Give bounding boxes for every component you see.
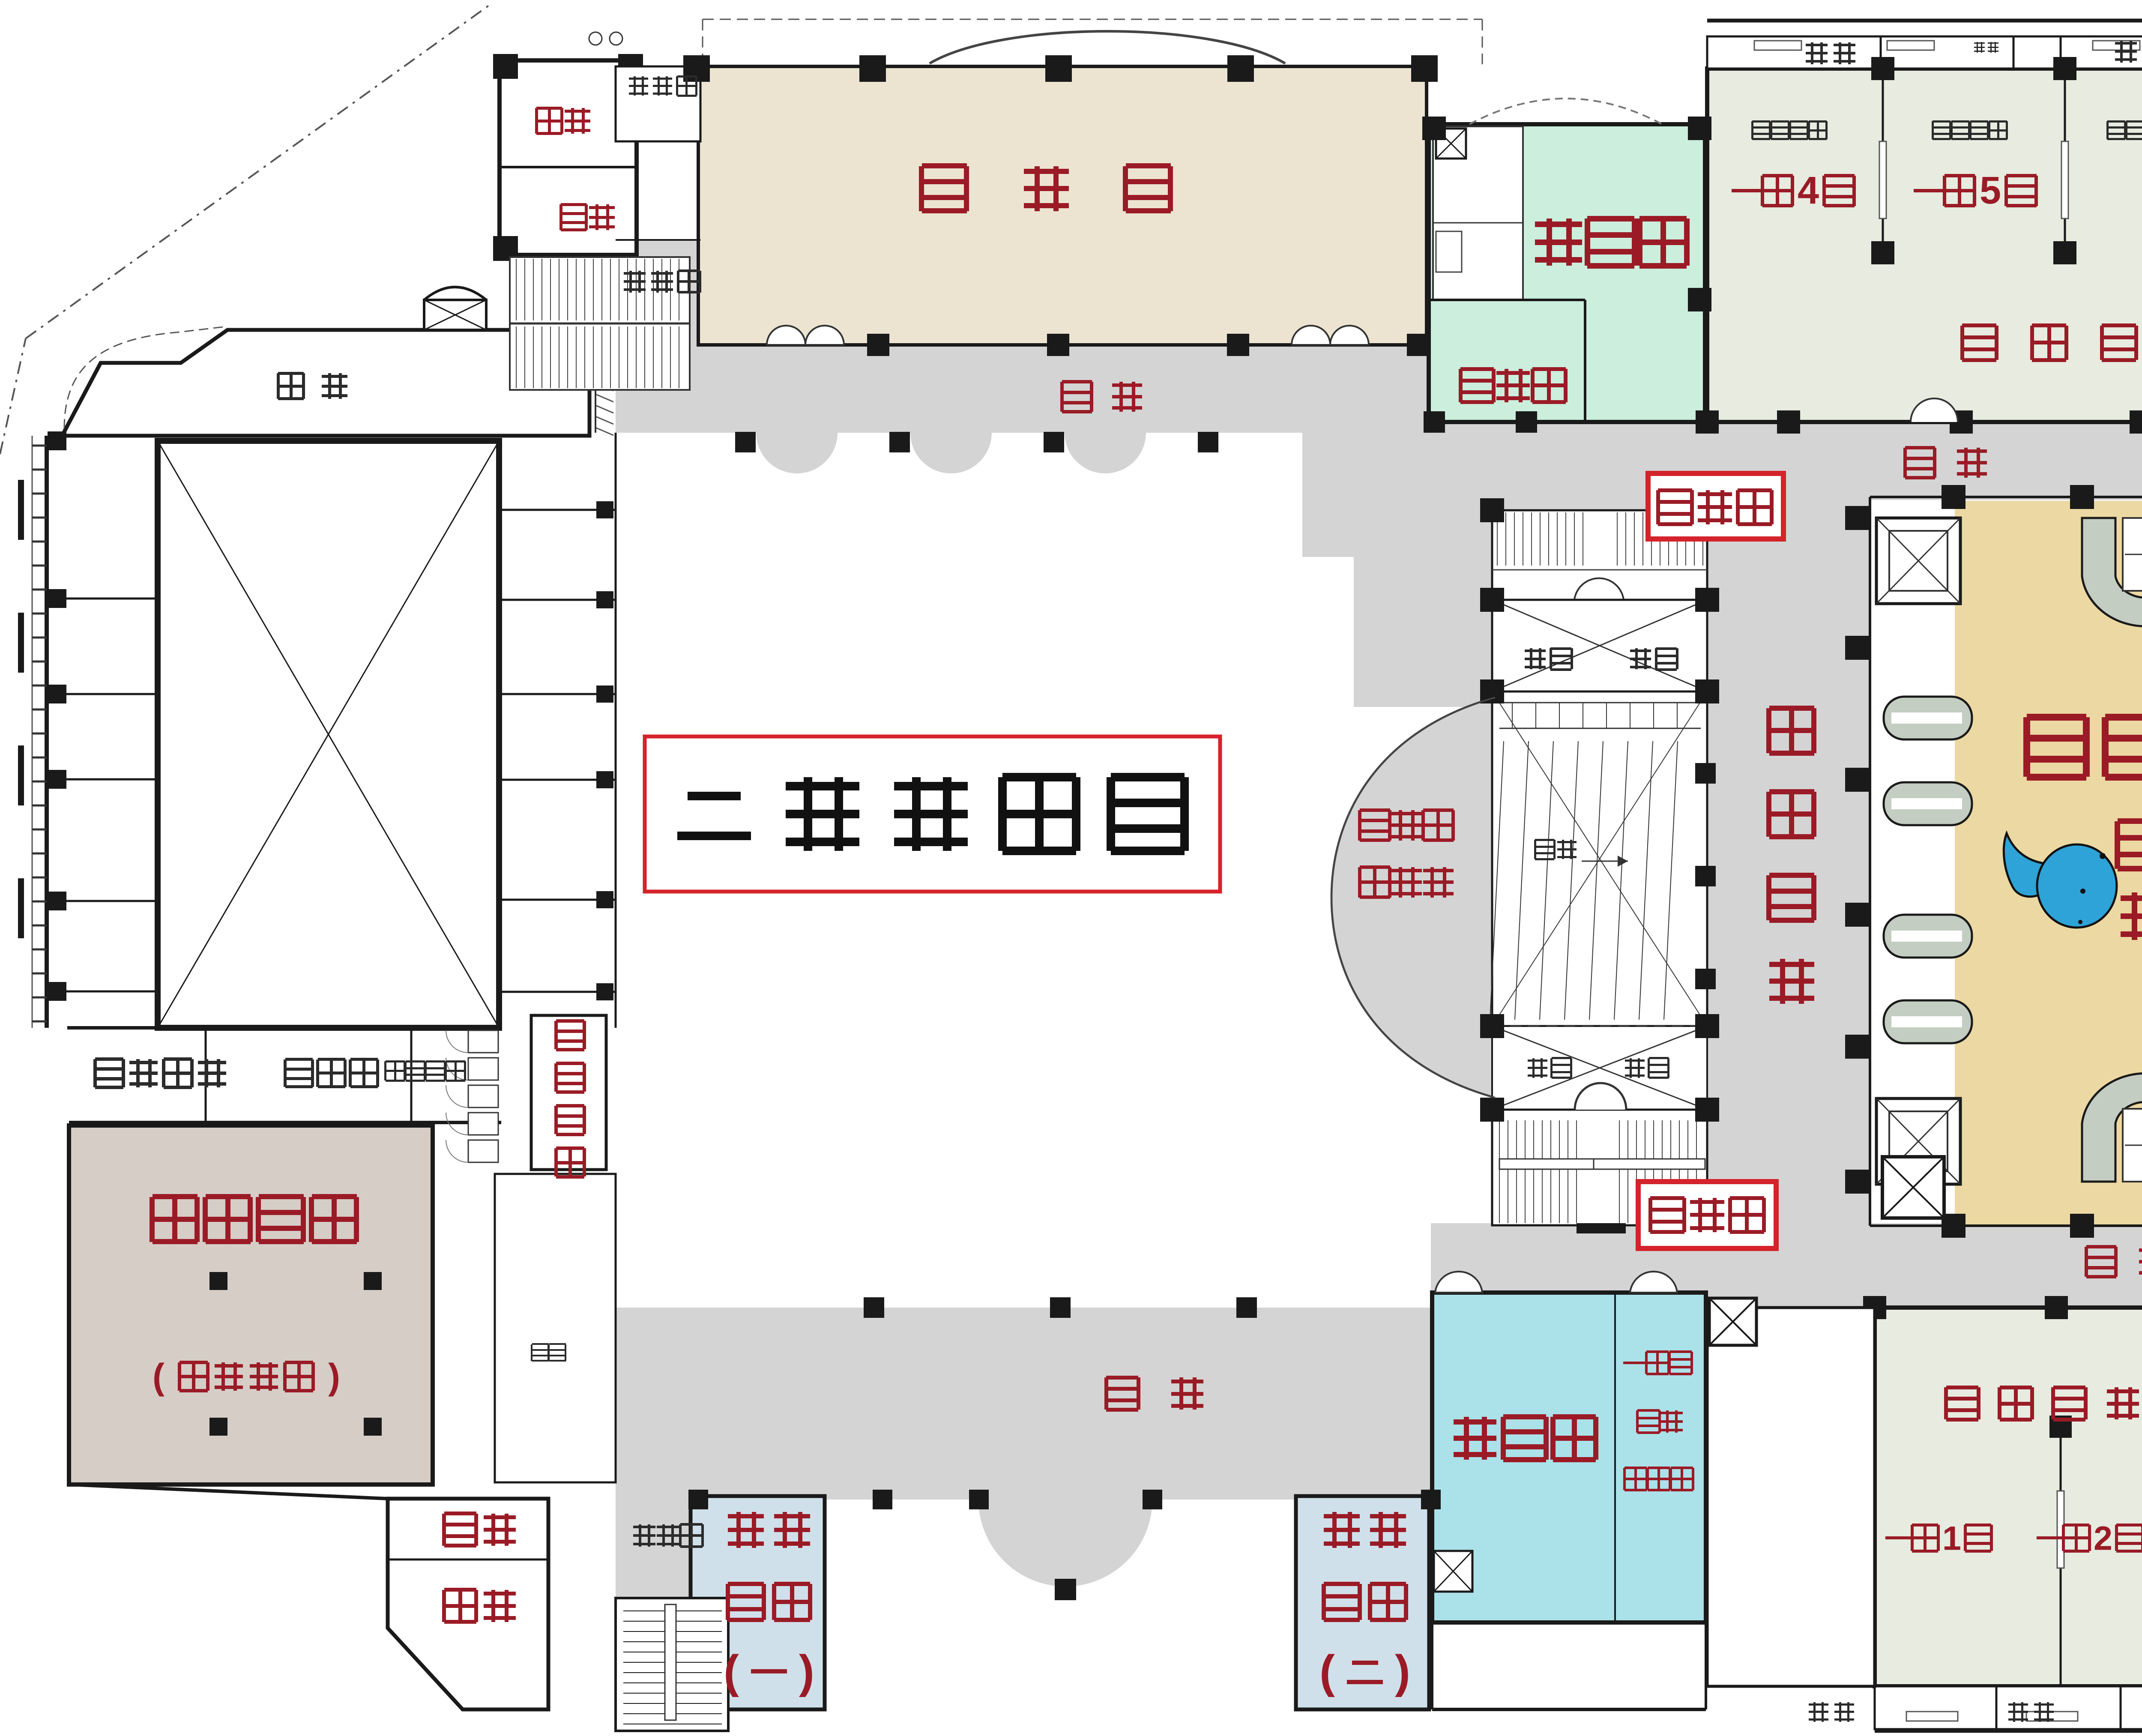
svg-text:): ): [1395, 1646, 1410, 1697]
svg-text:(: (: [153, 1356, 165, 1397]
svg-text:4: 4: [1798, 169, 1819, 212]
svg-text:(: (: [1319, 1646, 1335, 1697]
svg-text:1: 1: [1942, 1519, 1961, 1557]
svg-text:(: (: [724, 1646, 739, 1697]
svg-text:): ): [328, 1356, 340, 1397]
svg-text:5: 5: [1980, 169, 2001, 212]
svg-text:2: 2: [2094, 1519, 2112, 1557]
svg-text:): ): [799, 1646, 814, 1697]
